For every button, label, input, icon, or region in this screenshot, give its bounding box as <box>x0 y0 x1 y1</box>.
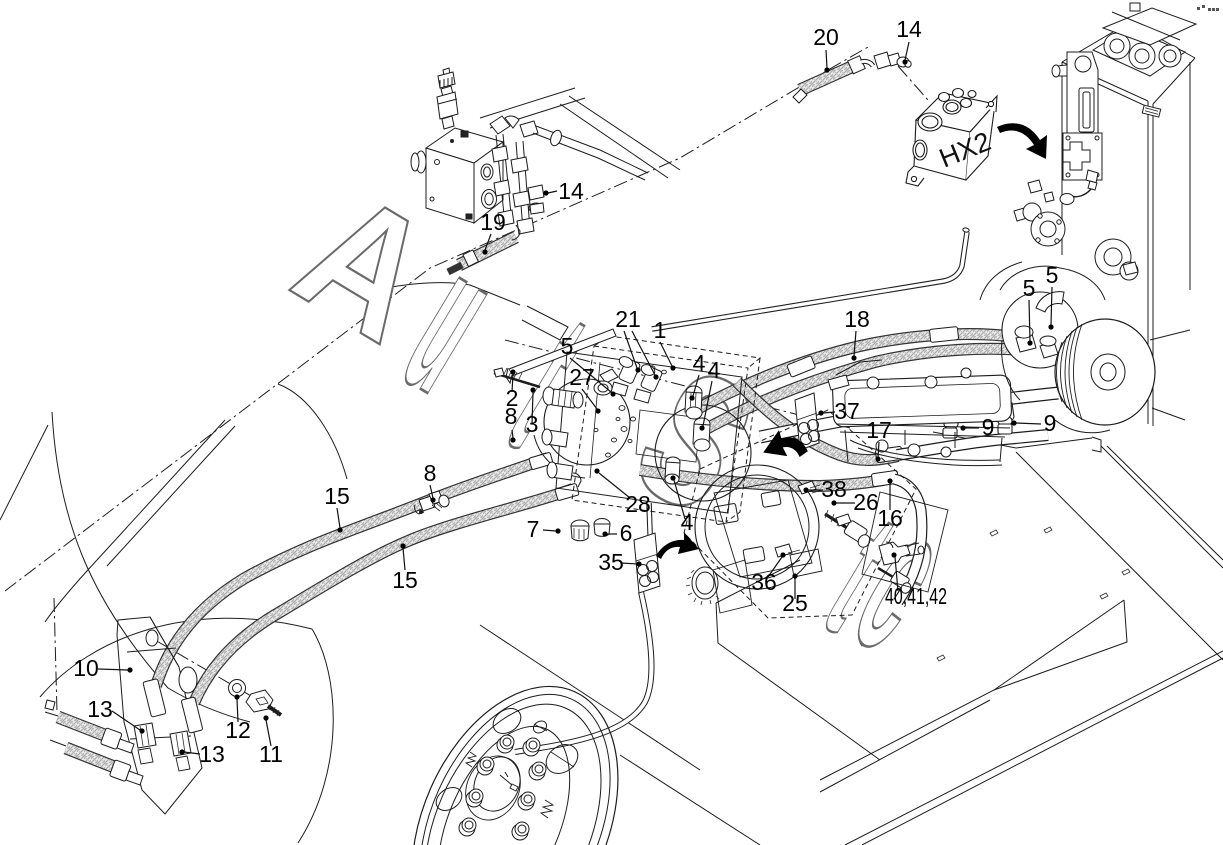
svg-text:36: 36 <box>751 569 777 595</box>
svg-text:20: 20 <box>813 24 839 50</box>
svg-text:26: 26 <box>853 489 879 515</box>
svg-text:3: 3 <box>526 411 539 437</box>
svg-text:21: 21 <box>615 306 641 332</box>
svg-text:5: 5 <box>1046 262 1059 288</box>
svg-text:40,41,42: 40,41,42 <box>885 583 947 609</box>
svg-text:11: 11 <box>259 741 283 767</box>
svg-text:27: 27 <box>569 364 595 390</box>
svg-text:14: 14 <box>896 16 922 42</box>
svg-text:15: 15 <box>392 567 418 593</box>
svg-text:9: 9 <box>982 414 995 440</box>
svg-text:7: 7 <box>527 516 540 542</box>
svg-text:10: 10 <box>73 655 99 681</box>
svg-text:18: 18 <box>844 306 870 332</box>
svg-text:15: 15 <box>324 483 350 509</box>
svg-text:12: 12 <box>225 717 251 743</box>
svg-text:35: 35 <box>598 549 624 575</box>
svg-text:8: 8 <box>424 460 437 486</box>
svg-text:6: 6 <box>620 520 633 546</box>
svg-text:13: 13 <box>87 696 113 722</box>
svg-text:28: 28 <box>625 491 651 517</box>
svg-text:17: 17 <box>866 417 892 443</box>
svg-text:14: 14 <box>558 178 584 204</box>
svg-text:38: 38 <box>821 476 847 502</box>
svg-text:13: 13 <box>199 741 225 767</box>
svg-text:4: 4 <box>693 350 706 376</box>
svg-text:25: 25 <box>782 590 808 616</box>
svg-text:5: 5 <box>561 333 574 359</box>
svg-text:4: 4 <box>681 509 694 535</box>
svg-text:4: 4 <box>708 357 721 383</box>
svg-text:1: 1 <box>654 317 667 343</box>
svg-text:8: 8 <box>505 403 518 429</box>
svg-text:9: 9 <box>1044 410 1057 436</box>
svg-text:16: 16 <box>877 505 903 531</box>
svg-text:19: 19 <box>480 209 506 235</box>
svg-text:5: 5 <box>1023 275 1036 301</box>
svg-text:37: 37 <box>834 398 860 424</box>
